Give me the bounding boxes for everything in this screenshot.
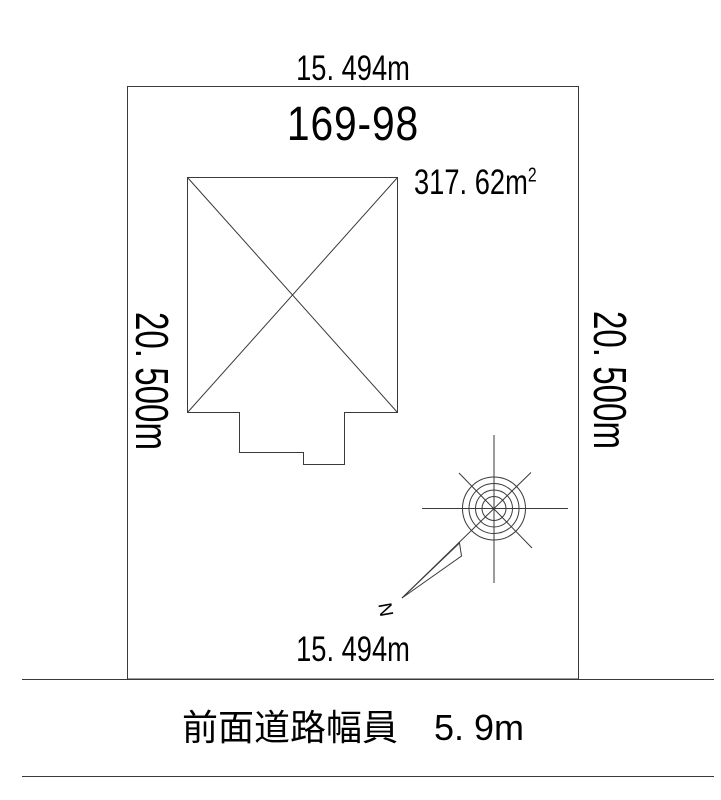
dimension-label-left: 20. 500m (129, 312, 175, 450)
building-cross-diagonals (188, 178, 398, 413)
building-outline (188, 178, 398, 465)
parcel-number-label: 169-98 (161, 101, 545, 149)
dimension-label-bottom: 15. 494m (177, 632, 530, 667)
north-arrow-icon (402, 543, 462, 598)
road-width-label: 前面道路幅員 5. 9m (127, 710, 579, 746)
area-label: 317. 62m2 (414, 165, 537, 200)
area-exponent: 2 (528, 164, 537, 186)
area-value: 317. 62m (414, 163, 528, 202)
dimension-label-top: 15. 494m (177, 51, 530, 86)
site-plan-diagram: 15. 494m 169-98 317. 62m2 20. 500m 20. 5… (0, 0, 721, 800)
dimension-label-right: 20. 500m (587, 311, 633, 449)
